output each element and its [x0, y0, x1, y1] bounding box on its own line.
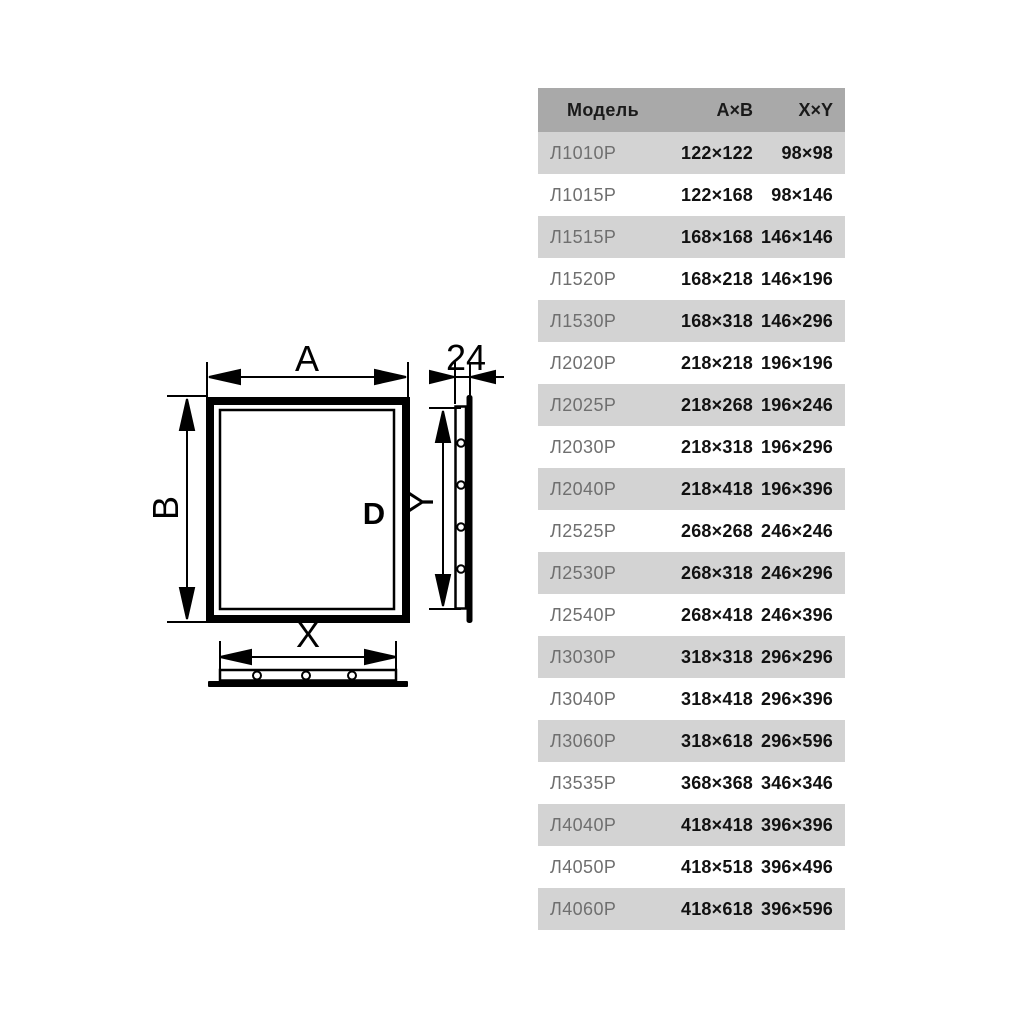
- ab-cell: 218×268: [661, 395, 753, 416]
- model-cell: Л2540Р: [550, 605, 661, 626]
- ab-cell: 218×318: [661, 437, 753, 458]
- arrowhead-right: [365, 650, 396, 664]
- label-y: Y: [400, 490, 441, 514]
- label-x: X: [296, 614, 320, 655]
- table-row: Л2025Р 218×268 196×246: [538, 384, 845, 426]
- table-row: Л4050Р 418×518 396×496: [538, 846, 845, 888]
- xy-cell: 296×396: [753, 689, 833, 710]
- table-row: Л2020Р 218×218 196×196: [538, 342, 845, 384]
- table-row: Л2530Р 268×318 246×296: [538, 552, 845, 594]
- table-row: Л1010Р 122×122 98×98: [538, 132, 845, 174]
- bottom-view: [208, 670, 408, 687]
- header-xy: X×Y: [753, 100, 833, 121]
- panel-face-edge: [467, 395, 473, 623]
- panel-face-edge: [208, 681, 408, 687]
- mounting-hole: [457, 481, 465, 489]
- handle-mark: D: [363, 496, 385, 531]
- xy-cell: 196×396: [753, 479, 833, 500]
- xy-cell: 396×596: [753, 899, 833, 920]
- xy-cell: 196×296: [753, 437, 833, 458]
- ab-cell: 318×418: [661, 689, 753, 710]
- model-cell: Л2030Р: [550, 437, 661, 458]
- model-cell: Л4060Р: [550, 899, 661, 920]
- model-cell: Л3535Р: [550, 773, 661, 794]
- ab-cell: 168×318: [661, 311, 753, 332]
- table-row: Л1520Р 168×218 146×196: [538, 258, 845, 300]
- model-cell: Л1515Р: [550, 227, 661, 248]
- arrowhead-left: [209, 370, 240, 384]
- xy-cell: 246×296: [753, 563, 833, 584]
- model-cell: Л3040Р: [550, 689, 661, 710]
- table-row: Л2525Р 268×268 246×246: [538, 510, 845, 552]
- model-cell: Л2025Р: [550, 395, 661, 416]
- mounting-hole: [457, 523, 465, 531]
- ab-cell: 122×122: [661, 143, 753, 164]
- label-b: B: [145, 496, 186, 520]
- model-cell: Л1520Р: [550, 269, 661, 290]
- xy-cell: 296×296: [753, 647, 833, 668]
- label-depth: 24: [446, 337, 486, 378]
- arrowhead-left: [220, 650, 251, 664]
- xy-cell: 396×496: [753, 857, 833, 878]
- ab-cell: 168×218: [661, 269, 753, 290]
- arrowhead-right: [375, 370, 406, 384]
- table-row: Л3030Р 318×318 296×296: [538, 636, 845, 678]
- ab-cell: 268×318: [661, 563, 753, 584]
- ab-cell: 168×168: [661, 227, 753, 248]
- table-row: Л2030Р 218×318 196×296: [538, 426, 845, 468]
- mounting-hole: [348, 672, 356, 680]
- xy-cell: 396×396: [753, 815, 833, 836]
- ab-cell: 268×268: [661, 521, 753, 542]
- table-row: Л1015Р 122×168 98×146: [538, 174, 845, 216]
- table-row: Л2540Р 268×418 246×396: [538, 594, 845, 636]
- table-body: Л1010Р 122×122 98×98 Л1015Р 122×168 98×1…: [538, 132, 845, 930]
- ab-cell: 122×168: [661, 185, 753, 206]
- ab-cell: 218×418: [661, 479, 753, 500]
- mounting-hole: [457, 565, 465, 573]
- xy-cell: 196×246: [753, 395, 833, 416]
- table-row: Л4060Р 418×618 396×596: [538, 888, 845, 930]
- arrowhead-top: [180, 399, 194, 430]
- side-view: [456, 395, 473, 623]
- arrowhead-bottom: [180, 588, 194, 619]
- table-row: Л1530Р 168×318 146×296: [538, 300, 845, 342]
- table-row: Л3060Р 318×618 296×596: [538, 720, 845, 762]
- xy-cell: 98×98: [753, 143, 833, 164]
- xy-cell: 196×196: [753, 353, 833, 374]
- table-row: Л2040Р 218×418 196×396: [538, 468, 845, 510]
- table-header: Модель A×B X×Y: [538, 88, 845, 132]
- xy-cell: 146×196: [753, 269, 833, 290]
- xy-cell: 346×346: [753, 773, 833, 794]
- table-row: Л3535Р 368×368 346×346: [538, 762, 845, 804]
- model-cell: Л3030Р: [550, 647, 661, 668]
- table-row: Л3040Р 318×418 296×396: [538, 678, 845, 720]
- table-row: Л1515Р 168×168 146×146: [538, 216, 845, 258]
- xy-cell: 146×146: [753, 227, 833, 248]
- arrowhead-bottom: [436, 575, 450, 606]
- model-cell: Л1530Р: [550, 311, 661, 332]
- header-ab: A×B: [661, 100, 753, 121]
- header-model: Модель: [550, 100, 661, 121]
- arrowhead-top: [436, 411, 450, 442]
- ab-cell: 418×418: [661, 815, 753, 836]
- xy-cell: 296×596: [753, 731, 833, 752]
- access-panel-technical-drawing: D A B: [0, 0, 1025, 1025]
- model-cell: Л2525Р: [550, 521, 661, 542]
- size-table: Модель A×B X×Y Л1010Р 122×122 98×98 Л101…: [538, 88, 845, 930]
- side-flange: [456, 407, 467, 609]
- model-cell: Л2020Р: [550, 353, 661, 374]
- model-cell: Л2040Р: [550, 479, 661, 500]
- page-canvas: D A B: [0, 0, 1025, 1025]
- model-cell: Л1010Р: [550, 143, 661, 164]
- mounting-hole: [302, 672, 310, 680]
- ab-cell: 318×318: [661, 647, 753, 668]
- mounting-hole: [253, 672, 261, 680]
- ab-cell: 418×618: [661, 899, 753, 920]
- model-cell: Л3060Р: [550, 731, 661, 752]
- label-a: A: [295, 338, 319, 379]
- ab-cell: 268×418: [661, 605, 753, 626]
- model-cell: Л4050Р: [550, 857, 661, 878]
- ab-cell: 418×518: [661, 857, 753, 878]
- model-cell: Л1015Р: [550, 185, 661, 206]
- ab-cell: 318×618: [661, 731, 753, 752]
- table-row: Л4040Р 418×418 396×396: [538, 804, 845, 846]
- xy-cell: 98×146: [753, 185, 833, 206]
- model-cell: Л4040Р: [550, 815, 661, 836]
- model-cell: Л2530Р: [550, 563, 661, 584]
- ab-cell: 368×368: [661, 773, 753, 794]
- xy-cell: 246×246: [753, 521, 833, 542]
- xy-cell: 146×296: [753, 311, 833, 332]
- mounting-hole: [457, 439, 465, 447]
- ab-cell: 218×218: [661, 353, 753, 374]
- xy-cell: 246×396: [753, 605, 833, 626]
